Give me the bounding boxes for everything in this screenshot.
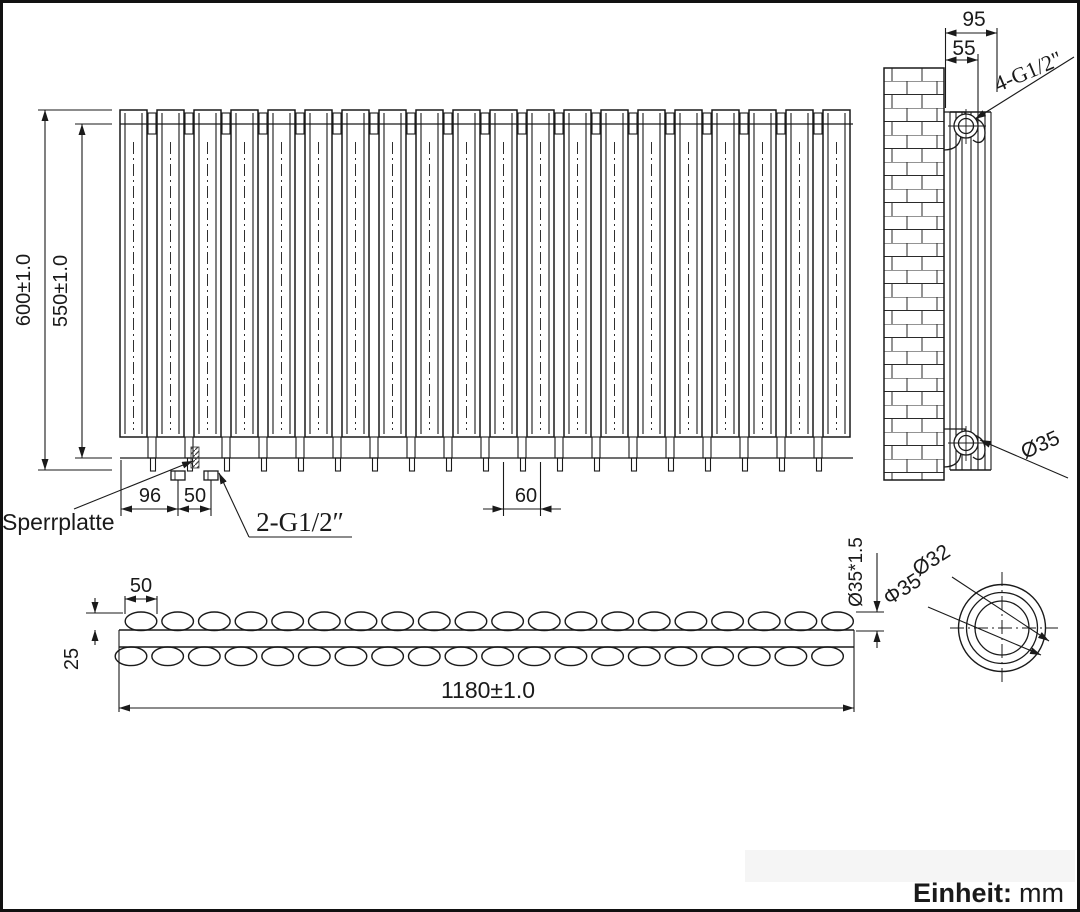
plan-oval-tubes xyxy=(115,612,853,666)
dim-row-offset: 25 xyxy=(61,648,83,670)
plan-oval-bottom xyxy=(592,647,624,666)
bottom-tab xyxy=(447,458,452,471)
plan-oval-top xyxy=(675,612,707,631)
plan-oval-top xyxy=(712,612,744,631)
plan-oval-top xyxy=(125,612,157,631)
plan-oval-bottom xyxy=(299,647,331,666)
plan-oval-bottom xyxy=(555,647,587,666)
bottom-connector xyxy=(740,437,748,458)
bottom-tab xyxy=(669,458,674,471)
plan-oval-bottom xyxy=(665,647,697,666)
unit-note-label: Einheit: xyxy=(913,878,1012,908)
plan-oval-top xyxy=(309,612,341,631)
plan-oval-top xyxy=(638,612,670,631)
plan-rail xyxy=(119,630,854,647)
plan-oval-bottom xyxy=(702,647,734,666)
front-view-frame xyxy=(120,124,853,480)
side-view: 95 55 4-G1/2" Ø35 xyxy=(884,8,1074,480)
plan-oval-top xyxy=(272,612,304,631)
bottom-connector xyxy=(814,437,822,458)
bottom-connector xyxy=(481,437,489,458)
bottom-tab xyxy=(743,458,748,471)
bottom-connector xyxy=(333,437,341,458)
label-locking-plate: Sperrplatte xyxy=(2,509,115,535)
label-pipe-diameter: Ø35 xyxy=(1018,426,1064,463)
foot-connection-right xyxy=(204,471,218,480)
bottom-tab xyxy=(484,458,489,471)
locking-plate-part xyxy=(191,447,199,468)
bottom-connector xyxy=(444,437,452,458)
plan-oval-top xyxy=(455,612,487,631)
plan-oval-top xyxy=(345,612,377,631)
bottom-tab xyxy=(262,458,267,471)
plan-oval-top xyxy=(492,612,524,631)
plan-oval-bottom xyxy=(518,647,550,666)
bottom-tab xyxy=(780,458,785,471)
bottom-connector xyxy=(259,437,267,458)
foot-connection-left xyxy=(171,471,185,480)
dim-length-overall: 1180±1.0 xyxy=(441,677,535,703)
bottom-connector xyxy=(629,437,637,458)
plan-oval-bottom xyxy=(372,647,404,666)
detail-circles xyxy=(928,572,1058,684)
dim-height-inner: 550±1.0 xyxy=(50,255,72,327)
unit-note-value: mm xyxy=(1019,878,1064,908)
unit-note: Einheit: mm xyxy=(913,878,1064,908)
bottom-tab xyxy=(225,458,230,471)
sperrplatte-leader xyxy=(74,461,193,509)
dim-tube-spec: Ø35*1.5 xyxy=(846,537,867,607)
bottom-tab xyxy=(558,458,563,471)
technical-drawing: 600±1.0 550±1.0 96 50 60 Sperrplatte 2-G… xyxy=(0,0,1080,912)
dim-oval-length: 50 xyxy=(130,575,152,597)
bottom-connector xyxy=(555,437,563,458)
bottom-connector xyxy=(666,437,674,458)
bottom-connector xyxy=(592,437,600,458)
side-radiator-body xyxy=(950,112,991,470)
plan-oval-top xyxy=(785,612,817,631)
plan-oval-bottom xyxy=(408,647,440,666)
bottom-connector xyxy=(518,437,526,458)
plan-oval-top xyxy=(382,612,414,631)
dim-height-overall: 600±1.0 xyxy=(13,254,35,326)
plan-oval-bottom xyxy=(152,647,184,666)
bottom-tab xyxy=(336,458,341,471)
plan-oval-top xyxy=(162,612,194,631)
plan-oval-top xyxy=(418,612,450,631)
plan-oval-top xyxy=(822,612,854,631)
dim-foot-spacing: 50 xyxy=(184,485,206,507)
detail-view: Ø32 Φ35 xyxy=(879,540,1058,684)
front-dim-lines xyxy=(38,110,561,537)
bottom-tab xyxy=(410,458,415,471)
bottom-connector xyxy=(222,437,230,458)
bottom-connector xyxy=(777,437,785,458)
plan-oval-bottom xyxy=(775,647,807,666)
bottom-tab xyxy=(521,458,526,471)
bottom-connector xyxy=(407,437,415,458)
dim-depth-overall: 95 xyxy=(962,8,985,31)
label-front-connection: 2-G1/2″ xyxy=(256,507,344,537)
plan-oval-bottom xyxy=(189,647,221,666)
plan-oval-top xyxy=(565,612,597,631)
bottom-connector xyxy=(296,437,304,458)
plan-oval-bottom xyxy=(628,647,660,666)
plan-oval-bottom xyxy=(482,647,514,666)
label-side-connection: 4-G1/2" xyxy=(990,46,1065,97)
plan-oval-bottom xyxy=(115,647,147,666)
bottom-tab xyxy=(632,458,637,471)
plan-oval-top xyxy=(528,612,560,631)
bottom-tab xyxy=(706,458,711,471)
plan-oval-bottom xyxy=(262,647,294,666)
bottom-tab xyxy=(151,458,156,471)
side-dim-lines xyxy=(946,28,1075,478)
plan-view: 50 25 1180±1.0 Ø35*1.5 xyxy=(61,537,884,712)
front-view-tubes xyxy=(120,110,850,471)
bottom-tab xyxy=(373,458,378,471)
drawing-page: 600±1.0 550±1.0 96 50 60 Sperrplatte 2-G… xyxy=(0,0,1080,912)
plan-oval-top xyxy=(748,612,780,631)
g12-leader xyxy=(219,473,249,537)
plan-oval-bottom xyxy=(225,647,257,666)
dim-foot-offset: 96 xyxy=(139,485,161,507)
brick-wall xyxy=(884,68,944,480)
side-tube-lines xyxy=(950,112,991,470)
bottom-tab xyxy=(595,458,600,471)
bottom-connector xyxy=(370,437,378,458)
plan-oval-bottom xyxy=(738,647,770,666)
bottom-connector xyxy=(703,437,711,458)
bottom-tab xyxy=(817,458,822,471)
bottom-connector xyxy=(148,437,156,458)
plan-oval-top xyxy=(235,612,267,631)
dim-wall-to-axis: 55 xyxy=(952,37,975,60)
plan-oval-top xyxy=(602,612,634,631)
plan-oval-bottom xyxy=(812,647,844,666)
plan-oval-bottom xyxy=(445,647,477,666)
bottom-tab xyxy=(299,458,304,471)
dim-tube-pitch: 60 xyxy=(515,485,537,507)
plan-oval-top xyxy=(199,612,231,631)
plan-oval-bottom xyxy=(335,647,367,666)
